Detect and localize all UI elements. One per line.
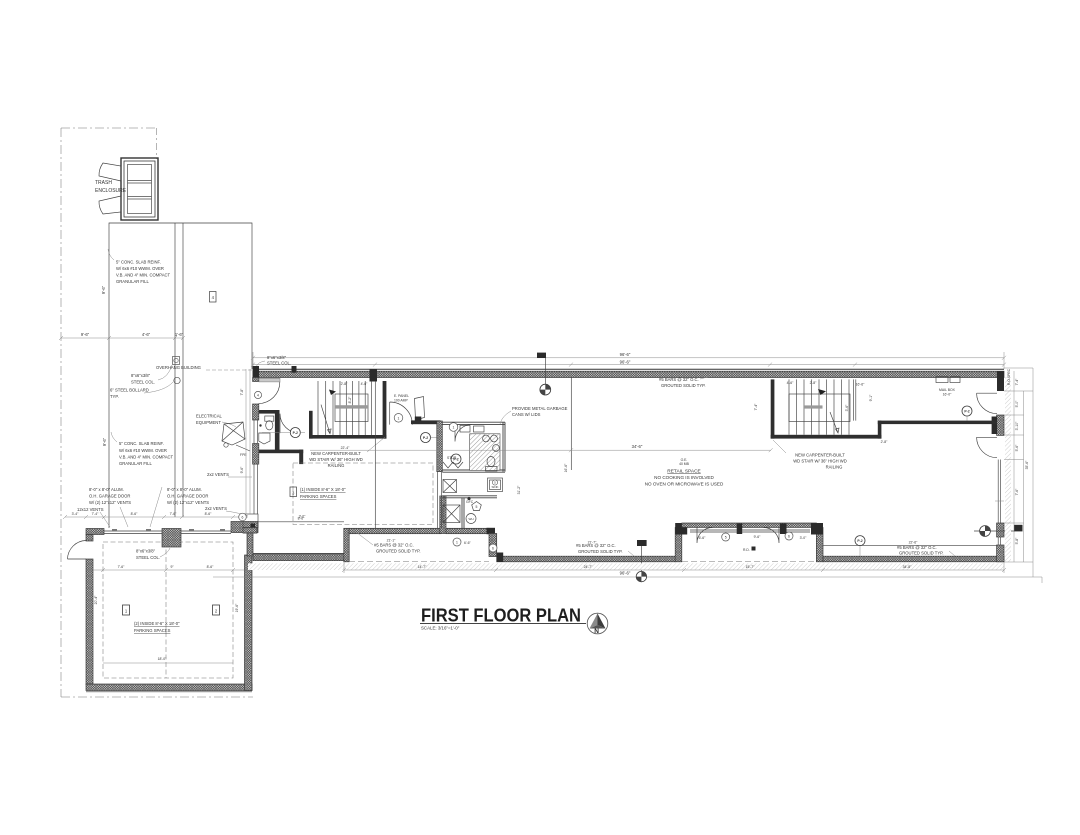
svg-text:NEW CARPENTER-BUILT: NEW CARPENTER-BUILT [311,451,361,456]
svg-text:12x12 VENTS: 12x12 VENTS [77,507,104,512]
svg-text:P-2: P-2 [857,539,862,543]
svg-text:14'-7": 14'-7" [418,565,427,569]
svg-text:8'-2": 8'-2" [348,396,352,404]
svg-text:8"x6"x3/8": 8"x6"x3/8" [267,355,287,360]
svg-text:9'-6": 9'-6" [240,466,244,474]
svg-text:4'-6": 4'-6" [142,332,151,337]
svg-text:WD STAIR W/ 36" HIGH WD: WD STAIR W/ 36" HIGH WD [309,457,363,462]
svg-text:V.B. AND 4" MIN. COMPACT: V.B. AND 4" MIN. COMPACT [116,273,171,278]
svg-text:9'-6": 9'-6" [81,332,90,337]
svg-text:NEW CARPENTER-BUILT: NEW CARPENTER-BUILT [795,453,845,458]
svg-text:22'-4": 22'-4" [341,446,350,450]
svg-text:3'-4": 3'-4" [72,512,80,516]
svg-text:9'-1": 9'-1" [869,394,873,402]
svg-text:5'-6": 5'-6" [1015,444,1019,452]
svg-text:9'-6": 9'-6" [101,285,106,294]
svg-text:PARKING SPACES: PARKING SPACES [134,628,171,633]
svg-text:6" STEEL BOLLARD: 6" STEEL BOLLARD [110,388,149,393]
svg-text:3'-10": 3'-10" [1015,421,1019,430]
svg-text:4'-6": 4'-6" [361,382,369,386]
svg-text:1'-6": 1'-6" [175,332,184,337]
svg-text:22'-6": 22'-6" [909,541,918,545]
svg-text:ELECTRICAL: ELECTRICAL [196,414,223,419]
svg-text:7'-6": 7'-6" [118,565,126,569]
svg-text:GROUTED SOLID TYP.: GROUTED SOLID TYP. [661,383,706,388]
svg-text:3'-6": 3'-6" [845,404,849,412]
svg-text:100 AMP: 100 AMP [394,399,408,403]
svg-text:GROUTED SOLID TYP.: GROUTED SOLID TYP. [899,551,944,556]
svg-text:96'-6": 96'-6" [620,352,631,357]
svg-text:6'-6": 6'-6" [464,541,472,545]
svg-text:W/ 6x6 #10 WWM. OVER: W/ 6x6 #10 WWM. OVER [116,266,164,271]
svg-text:8'-0" x 8'-0" ALUM.: 8'-0" x 8'-0" ALUM. [167,487,202,492]
svg-text:24'-7": 24'-7" [584,565,593,569]
svg-text:RAILING: RAILING [328,463,345,468]
svg-text:FIRST FLOOR PLAN: FIRST FLOOR PLAN [421,605,581,626]
svg-text:8'-6": 8'-6" [205,512,213,516]
svg-text:#5 BARS @ 32" O.C.: #5 BARS @ 32" O.C. [897,545,937,550]
svg-text:STOR.: STOR. [447,456,457,460]
svg-text:2x2 VENTS: 2x2 VENTS [207,472,229,477]
svg-text:3'-0": 3'-0" [299,515,307,519]
svg-text:9'-6": 9'-6" [754,535,762,539]
svg-text:R.D.: R.D. [743,548,750,552]
svg-text:#5 BARS @ 32" O.C.: #5 BARS @ 32" O.C. [576,543,616,548]
svg-text:8'-6": 8'-6" [207,565,215,569]
svg-text:5: 5 [725,536,727,540]
svg-text:1: 1 [398,416,400,420]
svg-text:31'-2": 31'-2" [517,485,521,494]
svg-text:CANS W/ LIDS: CANS W/ LIDS [512,412,541,417]
svg-text:7'-8": 7'-8" [240,388,244,396]
svg-text:5" CONC. SLAB REINF.: 5" CONC. SLAB REINF. [119,441,164,446]
svg-text:9'-6": 9'-6" [102,437,107,446]
svg-text:RETAIL SPACE: RETAIL SPACE [667,469,701,475]
svg-text:PARKING SPACES: PARKING SPACES [300,494,337,499]
svg-text:SINK: SINK [491,485,498,489]
svg-text:PROVIDE METAL GARBAGE: PROVIDE METAL GARBAGE [512,406,568,411]
svg-text:35'-6": 35'-6" [1025,460,1029,469]
svg-text:40 MB: 40 MB [679,462,690,466]
svg-text:W/ (2) 12"x12" VENTS: W/ (2) 12"x12" VENTS [89,500,131,505]
svg-text:19'-6": 19'-6" [235,603,239,612]
svg-text:MAIL BOX: MAIL BOX [939,388,956,392]
svg-text:5'-0": 5'-0" [1015,400,1019,408]
svg-text:5'-8": 5'-8" [1015,537,1019,545]
svg-text:4'-6": 4'-6" [787,381,795,385]
svg-text:V.B. AND 4" MIN. COMPACT: V.B. AND 4" MIN. COMPACT [119,455,174,460]
svg-text:6: 6 [492,547,494,551]
svg-text:#5 BARS @ 32" O.C.: #5 BARS @ 32" O.C. [374,543,414,548]
svg-text:96'-6": 96'-6" [620,571,631,576]
svg-text:GFC: GFC [466,500,474,504]
svg-text:P-2: P-2 [293,431,298,435]
svg-text:NO COOKING IS INVOLVED: NO COOKING IS INVOLVED [654,475,714,480]
svg-text:WH: WH [469,517,474,521]
svg-text:5" CONC. SLAB REINF.: 5" CONC. SLAB REINF. [116,260,161,265]
svg-text:(1) INSIDE 8'-6" X 18'-0": (1) INSIDE 8'-6" X 18'-0" [300,487,346,492]
svg-text:8"x6"x3/8": 8"x6"x3/8" [131,373,151,378]
svg-text:6: 6 [242,516,244,520]
svg-text:GRANULAR FILL: GRANULAR FILL [119,461,152,466]
svg-text:NO OVEN OR MICROWAVE IS USED: NO OVEN OR MICROWAVE IS USED [645,482,724,487]
svg-text:16'-6": 16'-6" [564,463,568,472]
svg-text:7'-4": 7'-4" [1015,378,1019,386]
svg-text:SCALE: 3/16"=1'-0": SCALE: 3/16"=1'-0" [421,626,460,631]
svg-text:OVERHANG BUILDING: OVERHANG BUILDING [156,365,201,370]
svg-text:20'-4": 20'-4" [94,595,98,604]
svg-text:W/ (2) 12"x12" VENTS: W/ (2) 12"x12" VENTS [167,500,209,505]
svg-text:TYP.: TYP. [110,394,119,399]
svg-text:#5 BARS @ 32" O.C.: #5 BARS @ 32" O.C. [659,377,699,382]
svg-text:R.O.SPEC: R.O.SPEC [1007,368,1011,385]
svg-text:15'-7": 15'-7" [746,565,755,569]
svg-text:2x2 VENTS: 2x2 VENTS [205,506,227,511]
svg-text:4: 4 [257,393,259,397]
svg-text:2'-8": 2'-8" [341,382,349,386]
svg-text:16'-6": 16'-6" [856,383,865,387]
svg-text:N: N [594,628,599,635]
svg-text:8'-0" x 8'-0" ALUM.: 8'-0" x 8'-0" ALUM. [89,487,124,492]
svg-text:96'-6": 96'-6" [620,359,631,364]
svg-text:ENCLOSURE: ENCLOSURE [95,188,127,194]
svg-text:2'-8": 2'-8" [810,381,818,385]
svg-text:34'-6": 34'-6" [632,444,643,449]
svg-text:7'-4": 7'-4" [754,403,758,411]
svg-text:7'-6": 7'-6" [170,512,178,516]
svg-text:O.H. GARAGE DOOR: O.H. GARAGE DOOR [89,494,130,499]
svg-text:P-2: P-2 [423,436,428,440]
svg-text:O.H. GARAGE DOOR: O.H. GARAGE DOOR [167,494,208,499]
svg-text:GRANULAR FILL: GRANULAR FILL [116,279,149,284]
svg-text:1: 1 [456,541,458,545]
svg-text:STEEL COL.: STEEL COL. [131,380,155,385]
svg-text:7'-6": 7'-6" [1015,488,1019,496]
svg-text:6'-6": 6'-6" [699,536,707,540]
svg-text:P-2: P-2 [964,410,969,414]
svg-text:GROUTED SOLID TYP.: GROUTED SOLID TYP. [376,549,421,554]
svg-text:(2) INSIDE 8'-6" X 18'-0": (2) INSIDE 8'-6" X 18'-0" [134,621,180,626]
svg-text:EQUIPMENT: EQUIPMENT [196,420,221,425]
svg-text:5: 5 [476,505,478,509]
svg-text:GROUTED SOLID TYP.: GROUTED SOLID TYP. [578,549,623,554]
svg-text:RAILING: RAILING [826,465,843,470]
svg-text:8'-6": 8'-6" [131,512,139,516]
svg-text:34'-8": 34'-8" [903,565,912,569]
svg-text:STEEL COL.: STEEL COL. [267,361,291,366]
svg-text:E. PANEL: E. PANEL [394,394,409,398]
svg-text:W/ 6x6 #10 WWM. OVER: W/ 6x6 #10 WWM. OVER [119,448,167,453]
svg-text:18'-0": 18'-0" [158,657,167,661]
svg-text:WD STAIR W/ 36" HIGH WD: WD STAIR W/ 36" HIGH WD [793,459,847,464]
svg-text:7'-4": 7'-4" [92,512,100,516]
svg-text:TRASH: TRASH [95,180,112,186]
svg-text:2'-8": 2'-8" [881,440,889,444]
svg-text:1: 1 [453,426,455,430]
svg-text:16'-0": 16'-0" [943,393,952,397]
svg-text:8"x6"x3/8": 8"x6"x3/8" [136,549,156,554]
svg-text:STEEL COL.: STEEL COL. [136,555,160,560]
svg-text:3'-0": 3'-0" [800,536,808,540]
svg-text:6: 6 [788,535,790,539]
